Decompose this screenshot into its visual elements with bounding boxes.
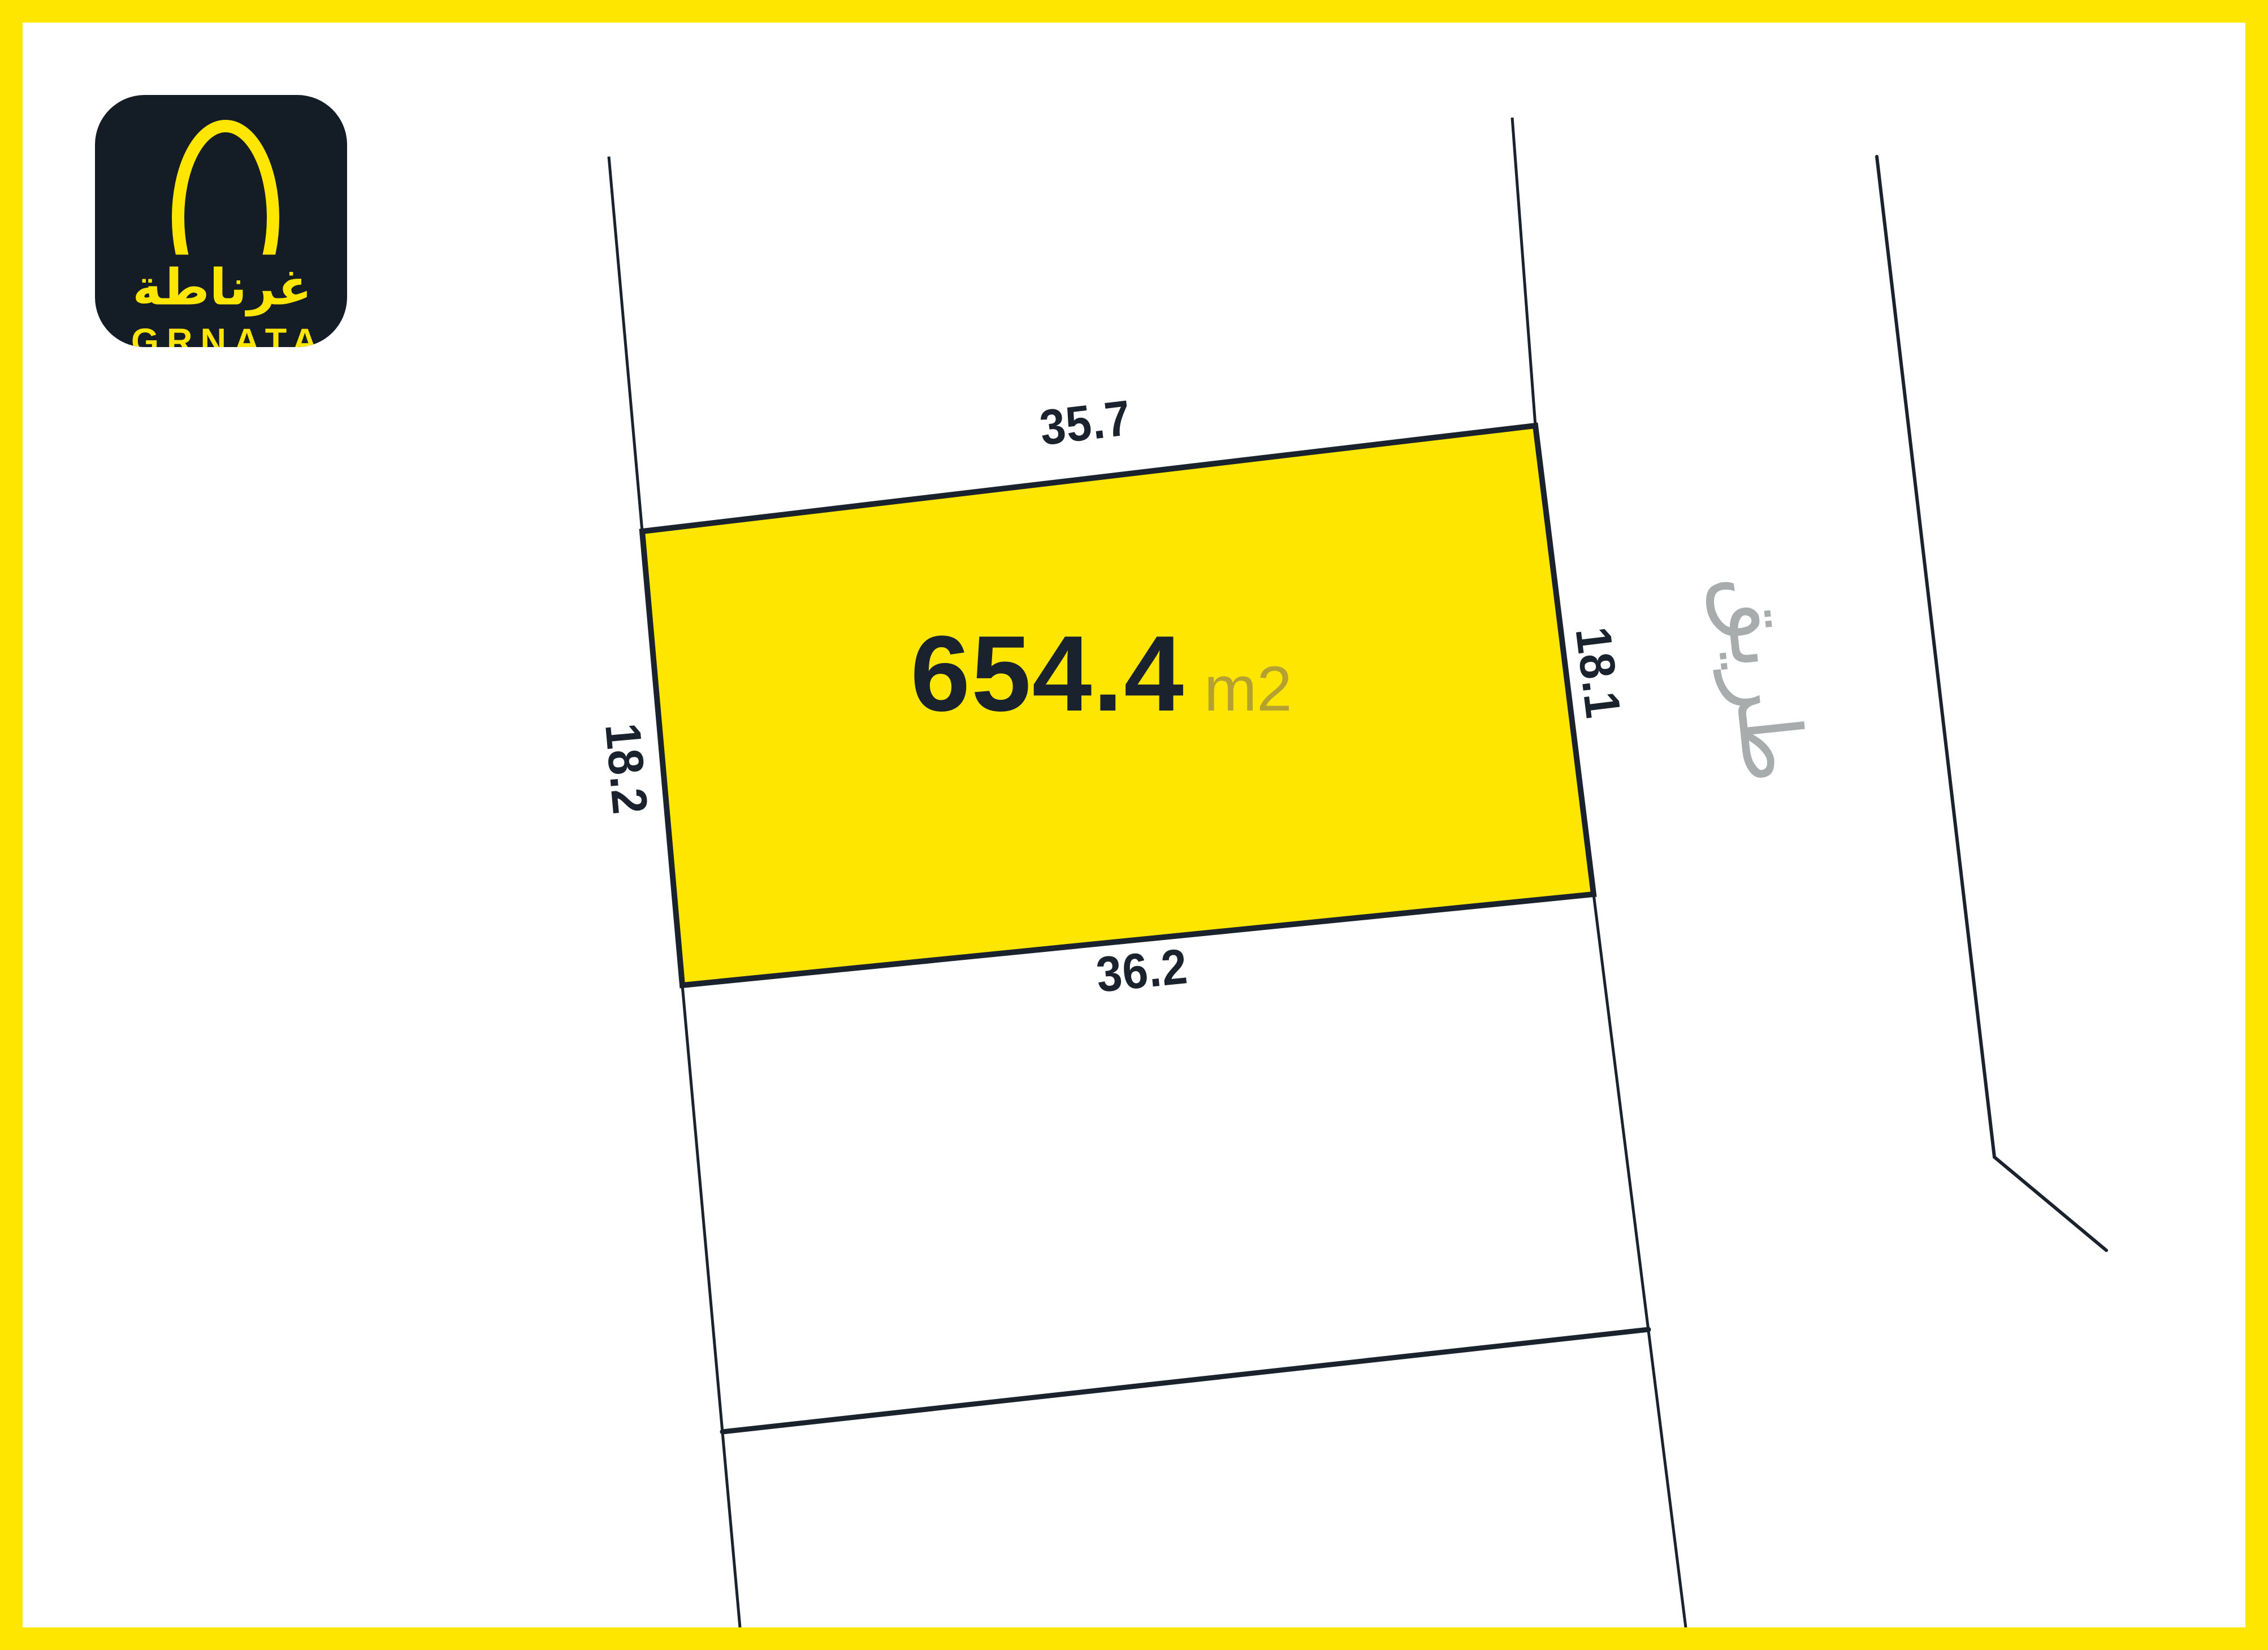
- road-edge-line: [1877, 157, 2106, 1250]
- dimension-label-bottom: 36.2: [1094, 937, 1191, 1004]
- logo-arabic-text: غرناطة: [124, 255, 319, 320]
- logo-latin-text: GRNATA: [122, 319, 329, 347]
- dimension-label-left: 18.2: [594, 721, 659, 817]
- plot-map: 35.7 36.2 18.2 18.1 654.4 m2 طريق غرناطة…: [0, 0, 2268, 1650]
- parcel-area: 654.4 m2: [910, 612, 1292, 735]
- brand-logo: غرناطة GRNATA: [95, 95, 347, 347]
- parcel-area-value: 654.4: [910, 612, 1184, 735]
- parcel-area-unit: m2: [1204, 652, 1292, 725]
- dimension-label-right: 18.1: [1564, 624, 1633, 721]
- parcel-divider-line: [722, 1329, 1648, 1432]
- dimension-label-top: 35.7: [1037, 389, 1134, 457]
